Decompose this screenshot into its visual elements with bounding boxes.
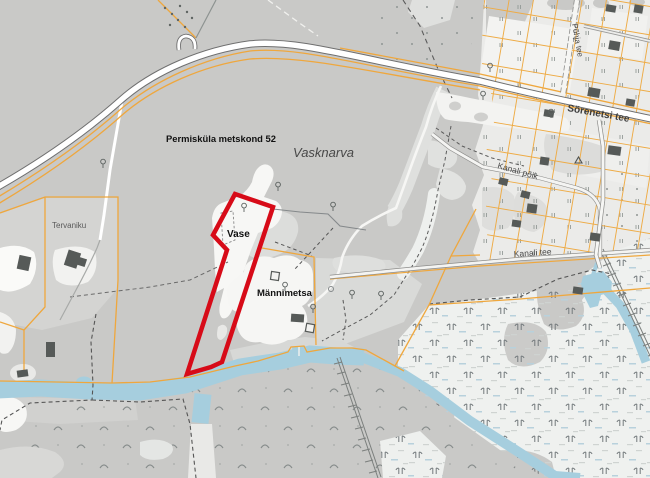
svg-text:Männimetsa: Männimetsa (257, 288, 313, 299)
svg-text:Tervaniku: Tervaniku (52, 221, 86, 230)
svg-text:Vase: Vase (227, 229, 250, 240)
svg-text:Vasknarva: Vasknarva (293, 145, 354, 160)
svg-text:Permisküla metskond 52: Permisküla metskond 52 (166, 133, 276, 144)
